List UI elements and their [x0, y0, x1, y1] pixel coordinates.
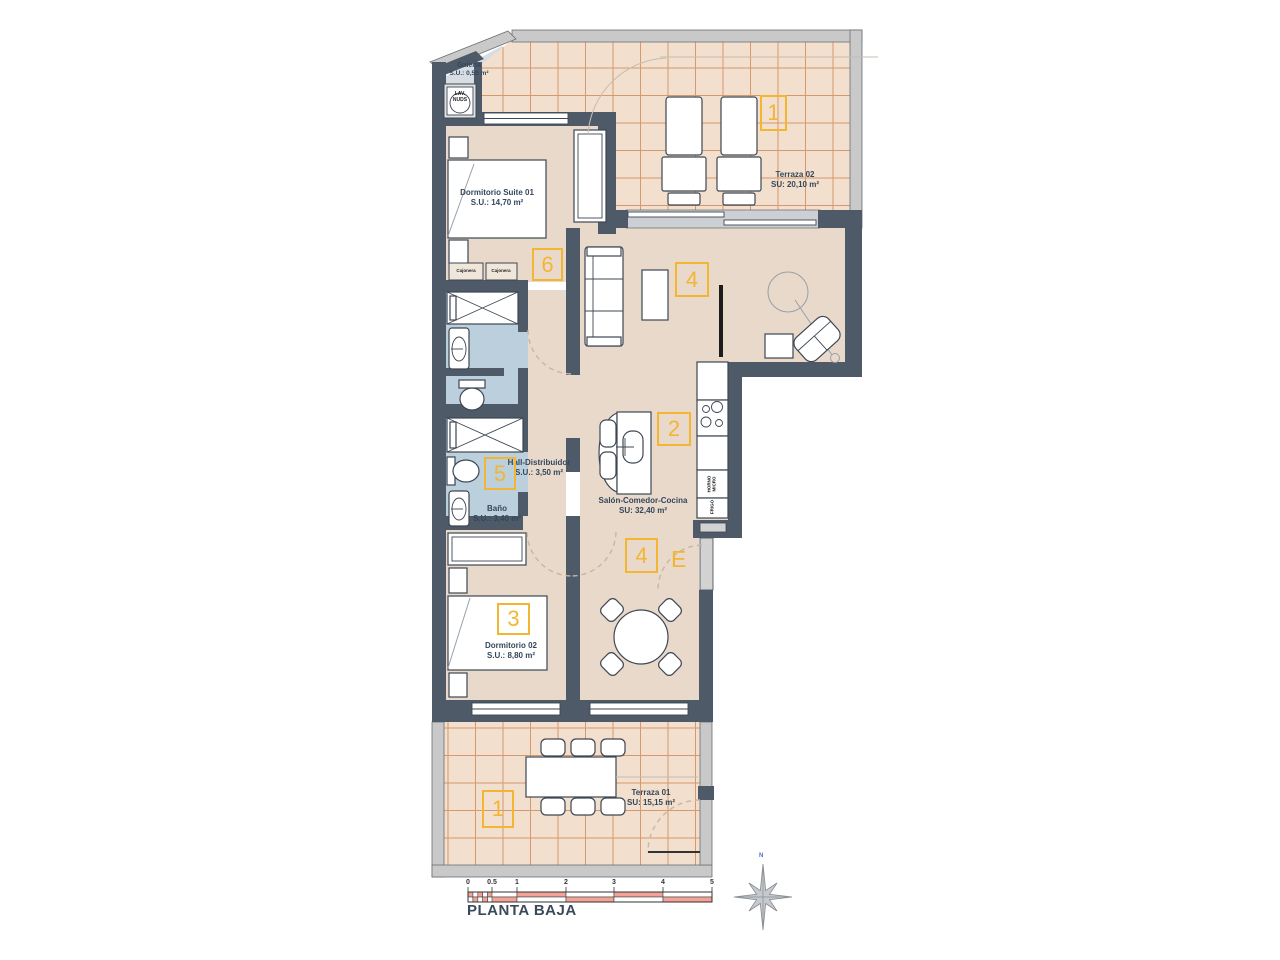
room-label-dorm02: Dormitorio 02 S.U.: 8,80 m²: [485, 641, 537, 662]
fridge-label: FRIGO: [709, 500, 714, 514]
cajonera-right-label: Cajonera: [491, 268, 510, 273]
entrance-letter: E: [671, 546, 686, 573]
marker-entrada: 4: [625, 538, 658, 573]
floor-plan-svg: [0, 0, 1280, 960]
scale-tick-5: 5: [710, 879, 714, 886]
washer-label: LAV. NUDS: [453, 91, 467, 103]
salon-area: SU: 32,40 m²: [599, 506, 688, 516]
north-label: N: [759, 853, 763, 859]
room-label-salon: Salón-Comedor-Cocina SU: 32,40 m²: [599, 496, 688, 517]
marker-terraza02: 1: [760, 95, 787, 131]
marker-salon: 4: [675, 262, 709, 297]
dorm02-area: S.U.: 8,80 m²: [485, 651, 537, 661]
scale-bar: [468, 887, 712, 902]
oven-micro-label: HORNO MICRO: [707, 476, 718, 493]
room-label-galeria: Galería S.U.: 0,50 m²: [449, 61, 488, 79]
suite-area: S.U.: 14,70 m²: [460, 198, 534, 208]
marker-suite: 6: [532, 248, 563, 281]
terraza02-area: SU: 20,10 m²: [771, 180, 819, 190]
cajonera-left-label: Cajonera: [456, 268, 475, 273]
room-label-hall: Hall-Distribuidor S.U.: 3,50 m²: [508, 458, 571, 479]
room-label-suite: Dormitorio Suite 01 S.U.: 14,70 m²: [460, 188, 534, 209]
room-label-terraza01: Terraza 01 SU: 15,15 m²: [627, 788, 675, 809]
north-compass-icon: [734, 864, 792, 930]
hall-area: S.U.: 3,50 m²: [508, 468, 571, 478]
terraza01-area: SU: 15,15 m²: [627, 798, 675, 808]
salon-name: Salón-Comedor-Cocina: [599, 496, 688, 506]
scale-tick-3: 3: [612, 879, 616, 886]
marker-terraza01: 1: [482, 790, 514, 828]
marker-cocina: 2: [657, 412, 691, 446]
scale-tick-4: 4: [661, 879, 665, 886]
scale-tick-05: 0.5: [487, 879, 497, 886]
room-label-terraza02: Terraza 02 SU: 20,10 m²: [771, 170, 819, 191]
bano-area: S.U.: 3,40 m²: [473, 514, 521, 524]
scale-tick-0: 0: [466, 879, 470, 886]
galeria-area: S.U.: 0,50 m²: [449, 70, 488, 78]
marker-dorm02: 3: [497, 603, 530, 635]
suite-name: Dormitorio Suite 01: [460, 188, 534, 198]
plan-title: PLANTA BAJA: [467, 902, 577, 919]
terraza02-name: Terraza 02: [771, 170, 819, 180]
scale-tick-1: 1: [515, 879, 519, 886]
terraza01-name: Terraza 01: [627, 788, 675, 798]
scale-tick-2: 2: [564, 879, 568, 886]
hall-name: Hall-Distribuidor: [508, 458, 571, 468]
room-label-bano: Baño S.U.: 3,40 m²: [473, 504, 521, 525]
marker-bano: 5: [484, 457, 516, 490]
floor-plan-page: Galería S.U.: 0,50 m² LAV. NUDS Dormitor…: [0, 0, 1280, 960]
bano-name: Baño: [473, 504, 521, 514]
dorm02-name: Dormitorio 02: [485, 641, 537, 651]
galeria-name: Galería: [449, 61, 488, 70]
